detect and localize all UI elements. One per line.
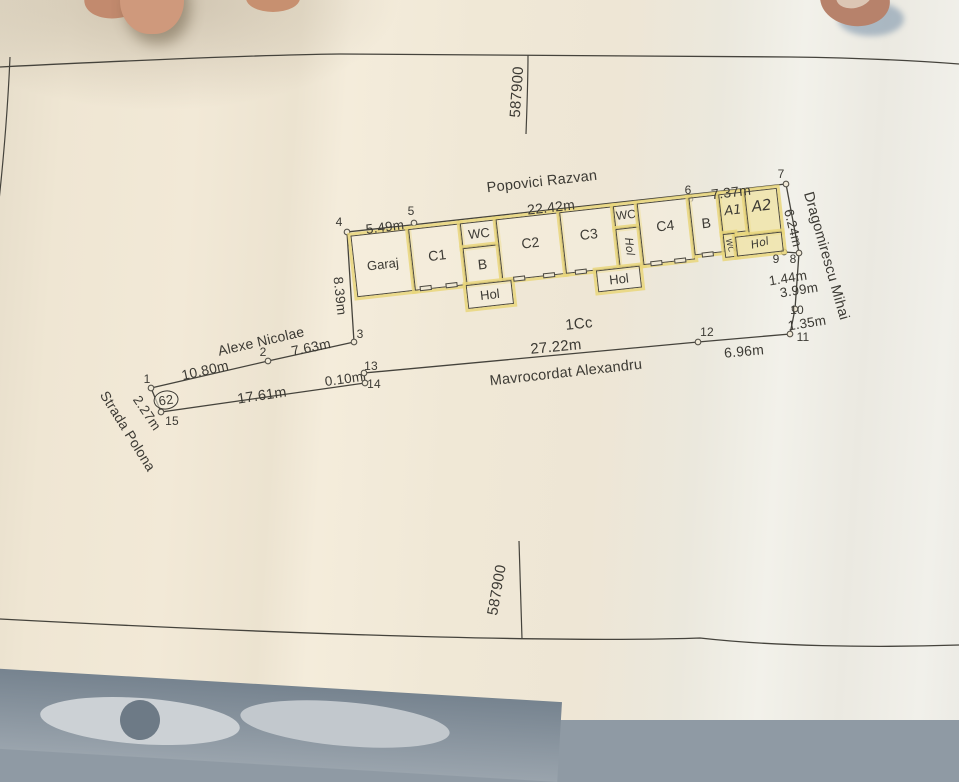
map-border-top [0, 54, 959, 67]
map-border-left [0, 57, 10, 210]
plan-line-drawing [0, 0, 959, 720]
survey-point-marker [783, 181, 789, 187]
window-tick [702, 251, 714, 257]
room-label-b2: B [701, 214, 712, 231]
point-number: 4 [336, 215, 343, 229]
survey-point-marker [695, 339, 701, 345]
grid-line-bottom [519, 541, 522, 639]
survey-point-marker [148, 385, 154, 391]
room-label-c4: C4 [655, 217, 675, 235]
point-number: 2 [260, 345, 267, 359]
point-number: 12 [700, 325, 714, 339]
room-label-c2: C2 [521, 234, 541, 252]
parcel-label-1cc: 1Cc [565, 314, 594, 334]
window-tick [513, 275, 525, 281]
point-number: 1 [144, 372, 151, 386]
window-tick [575, 269, 587, 275]
grid-coordinate-top: 587900 [507, 66, 528, 118]
point-number: 3 [357, 327, 364, 341]
room-label-hol-vertical: Hol [622, 237, 637, 256]
point-number: 15 [165, 414, 179, 428]
map-border-bottom [0, 619, 959, 646]
window-tick [543, 272, 555, 278]
window-tick [419, 285, 431, 291]
point-number: 6 [685, 183, 692, 197]
point-number: 8 [790, 252, 797, 266]
point-number: 11 [797, 330, 810, 344]
point-number: 13 [364, 359, 378, 373]
point-number: 7 [778, 167, 785, 181]
room-label-a2: A2 [751, 196, 773, 216]
survey-point-marker [265, 358, 271, 364]
window-tick [674, 257, 686, 263]
room-label-c3: C3 [579, 225, 599, 243]
room-label-hol1: Hol [479, 286, 500, 303]
window-tick [650, 260, 662, 266]
room-label-b1: B [477, 256, 488, 273]
room-label-wc2: WC [615, 207, 636, 223]
point-number: 14 [367, 377, 381, 391]
photo-of-site-plan: GarajC1WCBC2C3WCHolC4BA1A2WCHolHolHol 58… [0, 0, 959, 720]
room-label-c1: C1 [427, 246, 447, 264]
room-label-wc1: WC [467, 225, 490, 242]
room-label-a1: A1 [724, 202, 743, 219]
point-number: 5 [408, 204, 415, 218]
room-label-hol2: Hol [608, 270, 629, 287]
survey-point-marker [796, 250, 802, 256]
survey-point-marker [158, 409, 164, 415]
point-number: 9 [773, 252, 780, 266]
window-tick [445, 282, 457, 288]
point-number: 10 [790, 303, 804, 317]
